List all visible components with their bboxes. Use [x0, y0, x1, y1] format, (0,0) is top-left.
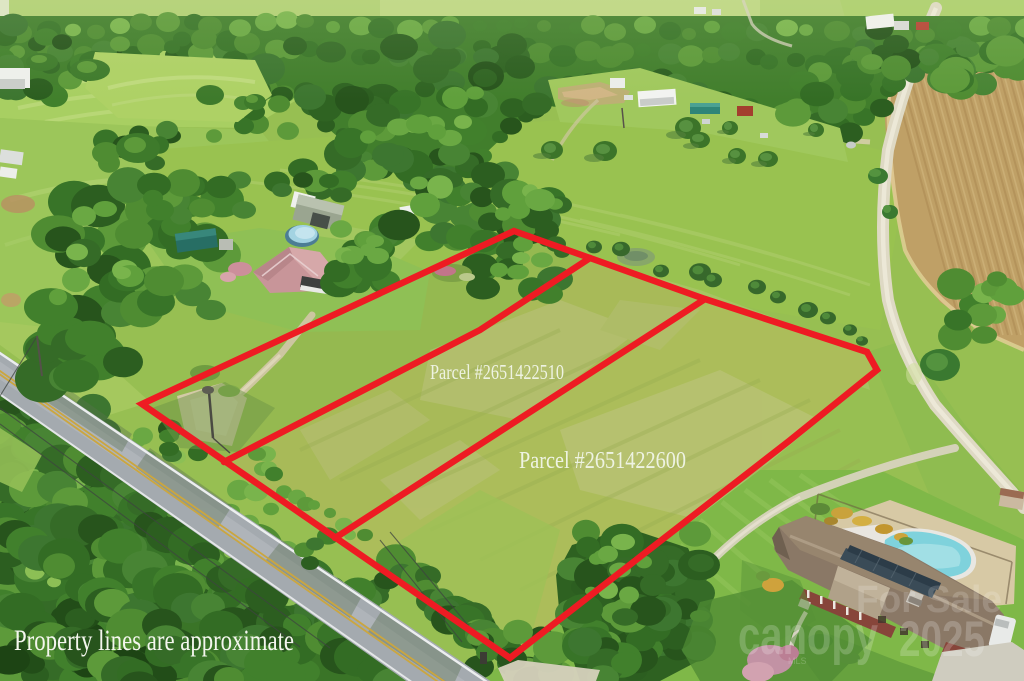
svg-text:Property lines are approximate: Property lines are approximate [14, 624, 294, 657]
svg-text:MLS: MLS [788, 656, 807, 666]
svg-text:2025: 2025 [899, 611, 985, 667]
svg-text:Parcel #2651422510: Parcel #2651422510 [430, 360, 564, 384]
svg-text:Parcel #2651422600: Parcel #2651422600 [519, 448, 686, 474]
svg-text:canopy: canopy [738, 606, 878, 666]
